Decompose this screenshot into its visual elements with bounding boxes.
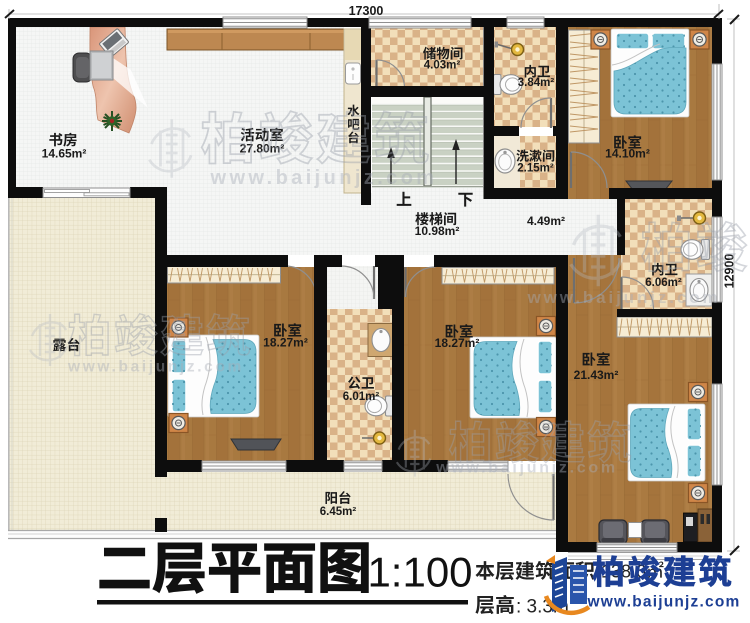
svg-text:www.baijunjz.com: www.baijunjz.com [435, 460, 618, 477]
svg-text:1:100: 1:100 [367, 549, 472, 596]
svg-text:14.65m²: 14.65m² [42, 147, 87, 161]
svg-text:18.27m²: 18.27m² [263, 336, 308, 350]
svg-text:6.45m²: 6.45m² [320, 506, 357, 518]
svg-text:www.baijunjz.com: www.baijunjz.com [209, 167, 437, 189]
svg-text:17300: 17300 [349, 4, 384, 18]
svg-text:14.10m²: 14.10m² [605, 147, 650, 161]
svg-text:21.43m²: 21.43m² [574, 368, 619, 382]
svg-text:4.49m²: 4.49m² [527, 214, 565, 228]
svg-text:www.baijunjz.com: www.baijunjz.com [587, 593, 741, 610]
svg-text:6.01m²: 6.01m² [343, 391, 380, 403]
svg-text:4.03m²: 4.03m² [424, 60, 461, 72]
svg-text:18.27m²: 18.27m² [435, 336, 480, 350]
svg-text:2.15m²: 2.15m² [517, 163, 554, 175]
svg-text:10.98m²: 10.98m² [415, 224, 460, 238]
svg-text:3.84m²: 3.84m² [518, 77, 555, 89]
svg-text:www.baijunjz.com: www.baijunjz.com [527, 288, 721, 307]
svg-text:www.baijunjz.com: www.baijunjz.com [67, 358, 244, 375]
